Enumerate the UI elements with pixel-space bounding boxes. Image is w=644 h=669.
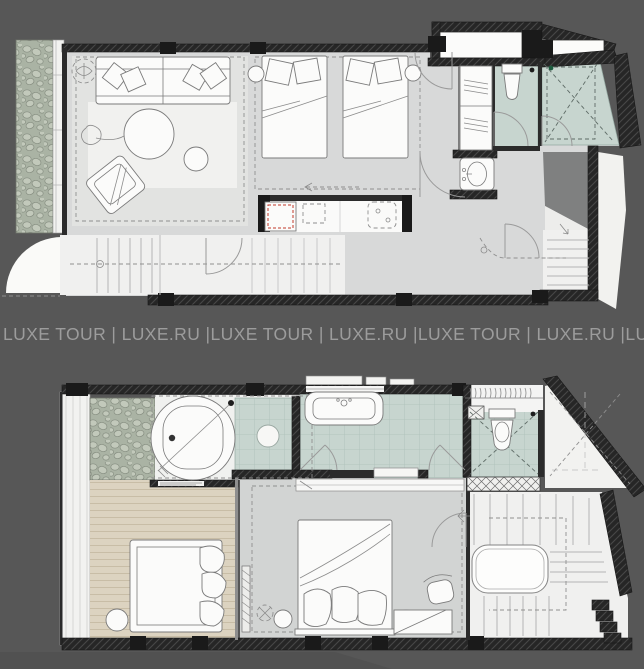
chaise-bench xyxy=(394,610,452,634)
stair-hall-floor xyxy=(60,235,345,295)
nightstand-lamp-left xyxy=(274,610,292,628)
pillow xyxy=(304,589,331,627)
nightstand-lamp-left xyxy=(248,66,264,82)
round-bathtub xyxy=(151,396,235,480)
stool xyxy=(257,425,279,447)
pillow xyxy=(358,590,387,625)
coffee-table xyxy=(124,109,174,159)
upper-floor-plan xyxy=(2,22,641,309)
vanity-double xyxy=(305,392,383,425)
ottoman xyxy=(184,147,208,171)
entry-door-swing xyxy=(6,237,62,293)
side-table xyxy=(106,609,128,631)
background-shadow xyxy=(0,652,392,669)
sofa xyxy=(96,57,230,104)
double-bed xyxy=(295,520,395,635)
stair-void-handrail xyxy=(472,545,548,593)
roof-overhang xyxy=(598,152,626,309)
wardrobe xyxy=(460,66,492,150)
daybed xyxy=(130,540,226,632)
bed-single-1 xyxy=(262,56,327,158)
lower-floor-plan xyxy=(60,376,644,650)
bed-single-2 xyxy=(343,56,408,158)
pebble-path xyxy=(16,40,53,233)
light-dot xyxy=(530,68,535,73)
pillow xyxy=(200,546,224,572)
gravel-patch xyxy=(90,398,155,480)
pillow xyxy=(332,586,360,622)
floor-plan-canvas: LUXE TOUR | LUXE.RU |LUXE TOUR | LUXE.RU… xyxy=(0,0,644,669)
mixer-dot xyxy=(228,400,234,406)
bench-sill xyxy=(374,468,418,477)
headboard xyxy=(295,629,395,635)
side-panelling xyxy=(60,392,90,645)
shower-head xyxy=(549,66,554,71)
vanity-sink xyxy=(460,158,494,190)
watermark-text: LUXE TOUR | LUXE.RU |LUXE TOUR | LUXE.RU… xyxy=(0,316,644,353)
railing-band xyxy=(467,477,540,491)
fridge xyxy=(265,202,296,231)
